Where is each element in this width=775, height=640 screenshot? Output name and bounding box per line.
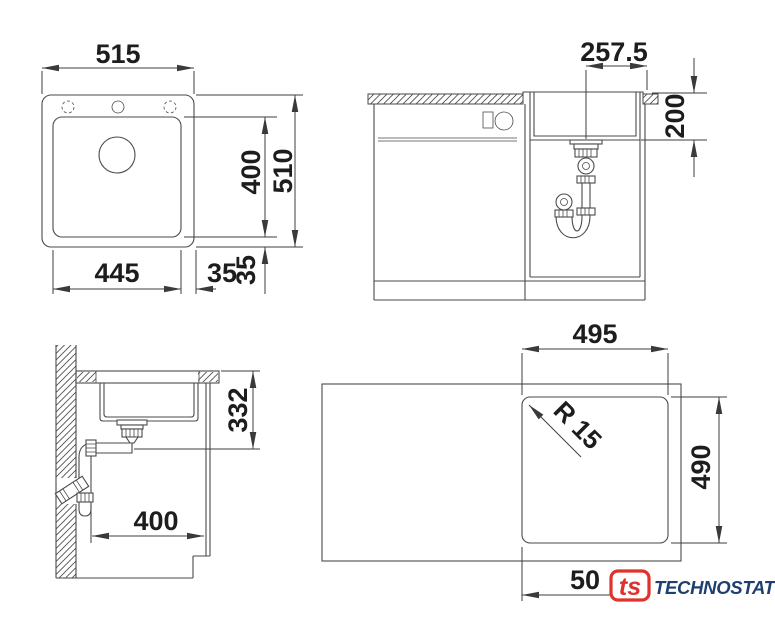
technical-drawing-page: 515 400 510 445 35 35 — [0, 0, 775, 640]
dim-overall-depth: 510 — [268, 148, 298, 193]
dim-corner-radius: R 15 — [548, 395, 608, 455]
side-view: 332 400 — [55, 345, 260, 578]
sink-technical-drawing: 515 400 510 445 35 35 — [0, 0, 775, 640]
countertop-side-hatch-right — [198, 372, 218, 382]
dim-bowl-depth: 200 — [660, 93, 690, 138]
sink-rim — [523, 92, 643, 94]
dim-overall-width: 515 — [95, 39, 140, 69]
sink-outline — [42, 95, 194, 247]
socket-circle-icon — [495, 112, 513, 130]
front-view: 257.5 200 — [368, 37, 707, 300]
dim-bowl-length: 400 — [236, 149, 266, 194]
worktop-outline — [322, 384, 681, 561]
dim-bowl-width: 445 — [94, 258, 139, 288]
dim-edge: 50 — [570, 565, 600, 595]
bowl-side-inner — [104, 383, 194, 417]
logo-brand-text: TECHNOSTATUS — [654, 577, 775, 598]
dim-clearance: 400 — [133, 506, 178, 536]
dim-drain-height: 332 — [223, 387, 253, 432]
bowl-section-outer — [530, 92, 640, 140]
drain-circle — [99, 137, 135, 173]
cutout-outline — [522, 397, 668, 543]
dim-cutout-width: 495 — [572, 319, 617, 349]
logo-mark-icon: ts — [619, 573, 641, 601]
bowl-side-outer — [100, 383, 198, 421]
bowl-section-inner — [534, 92, 636, 136]
brand-logo: ts TECHNOSTATUS — [611, 571, 775, 601]
tap-hole-left-dashed — [62, 101, 74, 113]
countertop-hatch-right — [643, 94, 658, 104]
socket-rect-icon — [483, 112, 493, 128]
cabinet-front — [374, 104, 645, 300]
countertop-hatch-left — [368, 94, 523, 104]
top-view: 515 400 510 445 35 35 — [42, 39, 303, 294]
wall-hatch-lower — [56, 504, 76, 578]
dim-drain-offset: 257.5 — [580, 37, 648, 67]
siphon-front — [555, 140, 602, 238]
countertop-side-hatch-left — [77, 372, 96, 382]
wall-hatch-upper — [56, 345, 76, 478]
dim-bottom-gap: 35 — [231, 255, 261, 285]
tap-hole-right-dashed — [164, 101, 176, 113]
countertop-side — [76, 371, 219, 383]
bowl-outline — [53, 117, 181, 237]
cutout-view: 495 490 R 15 50 — [322, 319, 727, 601]
tap-hole-center — [112, 101, 124, 113]
dim-cutout-height: 490 — [686, 444, 716, 489]
